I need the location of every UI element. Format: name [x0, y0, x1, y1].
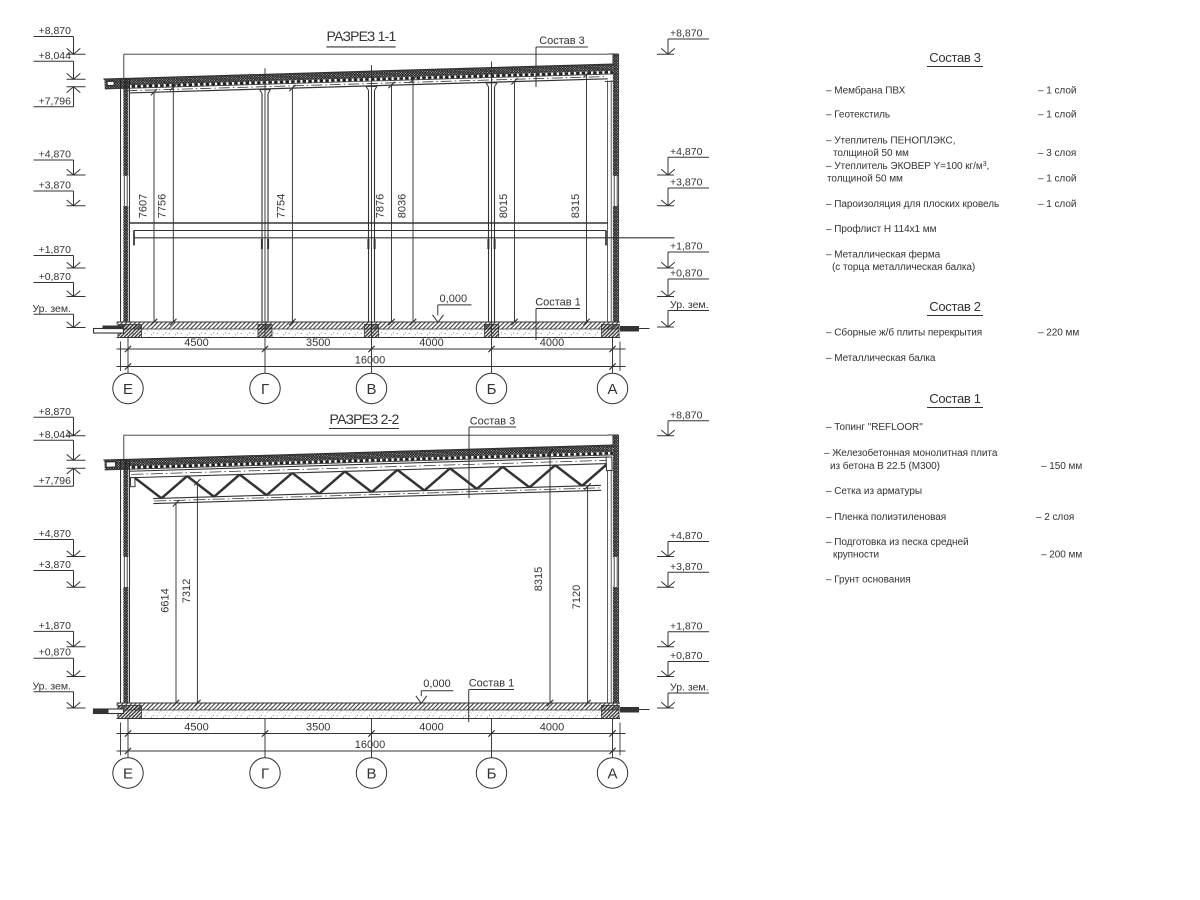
svg-text:+8,044: +8,044: [39, 429, 72, 441]
svg-text:Б: Б: [487, 381, 497, 398]
svg-text:+8,870: +8,870: [670, 28, 703, 40]
svg-text:Ур. зем.: Ур. зем.: [670, 682, 709, 694]
svg-text:Состав 3: Состав 3: [539, 35, 585, 47]
svg-text:РАЗРЕЗ 1-1: РАЗРЕЗ 1-1: [327, 28, 397, 44]
svg-text:8315: 8315: [570, 194, 582, 218]
svg-text:– Топинг "REFLOOR": – Топинг "REFLOOR": [826, 422, 923, 433]
svg-text:Состав 1: Состав 1: [469, 678, 515, 690]
svg-text:7756: 7756: [157, 194, 169, 218]
svg-text:4000: 4000: [540, 337, 564, 349]
svg-text:– Профлист Н 114х1 мм: – Профлист Н 114х1 мм: [826, 223, 937, 235]
svg-text:из бетона В 22.5 (М300): из бетона В 22.5 (М300): [830, 460, 940, 472]
svg-text:толщиной 50 мм: толщиной 50 мм: [827, 174, 903, 185]
svg-text:– 1 слой: – 1 слой: [1038, 110, 1076, 121]
svg-text:+0,870: +0,870: [39, 647, 72, 659]
svg-text:7754: 7754: [276, 194, 288, 218]
svg-text:– 150 мм: – 150 мм: [1041, 461, 1082, 472]
svg-text:Е: Е: [123, 381, 133, 398]
svg-text:А: А: [607, 381, 617, 398]
svg-text:+3,870: +3,870: [39, 180, 72, 192]
svg-text:+3,870: +3,870: [670, 177, 703, 189]
svg-text:8036: 8036: [397, 194, 409, 218]
svg-text:Ур. зем.: Ур. зем.: [32, 303, 71, 315]
svg-text:– Железобетонная монолитная п: – Железобетонная монолитная плита: [824, 447, 998, 459]
svg-text:7312: 7312: [181, 579, 193, 603]
svg-text:+0,870: +0,870: [670, 268, 703, 280]
svg-text:+4,870: +4,870: [670, 146, 703, 158]
svg-text:+4,870: +4,870: [39, 149, 72, 161]
svg-text:– 220 мм: – 220 мм: [1038, 328, 1079, 339]
svg-text:+4,870: +4,870: [670, 530, 703, 542]
svg-text:Г: Г: [261, 381, 269, 398]
svg-text:+4,870: +4,870: [39, 528, 72, 540]
svg-text:+0,870: +0,870: [670, 650, 703, 662]
svg-text:+7,796: +7,796: [39, 475, 72, 487]
svg-text:7120: 7120: [571, 585, 583, 609]
svg-text:4000: 4000: [419, 337, 443, 349]
svg-text:+8,044: +8,044: [39, 50, 72, 62]
svg-text:16000: 16000: [355, 739, 386, 751]
svg-text:– Утеплитель ПЕНОПЛЭКС,: – Утеплитель ПЕНОПЛЭКС,: [826, 136, 955, 147]
svg-text:Состав 3: Состав 3: [929, 50, 981, 65]
svg-text:8015: 8015: [498, 194, 510, 218]
svg-text:3500: 3500: [306, 722, 330, 734]
svg-text:– Сборные ж/б плиты перекрытия: – Сборные ж/б плиты перекрытия: [826, 327, 982, 339]
svg-text:– Пароизоляция для плоских кро: – Пароизоляция для плоских кровель: [826, 199, 999, 210]
svg-text:– Металлическая ферма: – Металлическая ферма: [826, 249, 941, 261]
svg-text:+8,870: +8,870: [39, 25, 72, 37]
svg-text:Состав 1: Состав 1: [535, 297, 581, 309]
svg-text:– Сетка из арматуры: – Сетка из арматуры: [826, 486, 922, 497]
svg-text:Б: Б: [487, 765, 497, 782]
svg-text:В: В: [366, 765, 376, 782]
svg-text:4500: 4500: [184, 337, 208, 349]
svg-text:+3,870: +3,870: [39, 559, 72, 571]
svg-text:+1,870: +1,870: [670, 620, 703, 632]
svg-text:+1,870: +1,870: [670, 241, 703, 253]
svg-text:– Грунт основания: – Грунт основания: [826, 575, 911, 586]
svg-text:– Подготовка из песка средней: – Подготовка из песка средней: [826, 537, 969, 548]
svg-text:Ур. зем.: Ур. зем.: [32, 680, 71, 692]
svg-text:+7,796: +7,796: [39, 95, 72, 107]
svg-text:+1,870: +1,870: [39, 244, 72, 256]
svg-text:4000: 4000: [419, 722, 443, 734]
svg-text:РАЗРЕЗ 2-2: РАЗРЕЗ 2-2: [330, 411, 400, 427]
svg-text:4500: 4500: [184, 722, 208, 734]
svg-text:6614: 6614: [160, 588, 172, 612]
svg-text:3500: 3500: [306, 337, 330, 349]
svg-text:7876: 7876: [375, 194, 387, 218]
svg-text:7607: 7607: [138, 194, 150, 218]
svg-text:– 1 слой: – 1 слой: [1038, 86, 1076, 97]
svg-text:А: А: [607, 765, 617, 782]
svg-text:4000: 4000: [540, 722, 564, 734]
svg-text:+3,870: +3,870: [670, 561, 703, 573]
svg-text:8315: 8315: [533, 567, 545, 591]
svg-text:– Пленка полиэтиленовая: – Пленка полиэтиленовая: [826, 512, 946, 523]
svg-text:крупности: крупности: [833, 550, 879, 561]
svg-text:+1,870: +1,870: [39, 620, 72, 632]
svg-text:0,000: 0,000: [423, 678, 451, 690]
svg-text:– 200 мм: – 200 мм: [1041, 550, 1082, 561]
svg-text:– Утеплитель ЭКОВЕР Y=100 кг/м: – Утеплитель ЭКОВЕР Y=100 кг/м3,: [826, 161, 989, 173]
svg-text:– Металлическая балка: – Металлическая балка: [826, 352, 936, 364]
svg-text:– 1 слой: – 1 слой: [1038, 199, 1076, 210]
svg-text:16000: 16000: [355, 355, 386, 367]
svg-text:В: В: [366, 381, 376, 398]
svg-text:– Мембрана ПВХ: – Мембрана ПВХ: [826, 85, 906, 97]
svg-text:+0,870: +0,870: [39, 271, 72, 283]
svg-text:Г: Г: [261, 765, 269, 782]
svg-text:Состав 1: Состав 1: [929, 391, 981, 406]
svg-text:– 1 слой: – 1 слой: [1038, 174, 1076, 185]
svg-text:+8,870: +8,870: [670, 409, 703, 421]
svg-text:Состав 3: Состав 3: [470, 416, 516, 428]
svg-text:0,000: 0,000: [440, 293, 468, 305]
svg-text:+8,870: +8,870: [39, 406, 72, 418]
svg-text:– 3 слоя: – 3 слоя: [1038, 148, 1076, 159]
svg-text:толщиной 50 мм: толщиной 50 мм: [833, 148, 909, 159]
svg-text:Состав 2: Состав 2: [929, 299, 981, 314]
svg-text:Ур. зем.: Ур. зем.: [670, 299, 709, 311]
svg-text:– 2 слоя: – 2 слоя: [1036, 512, 1074, 523]
svg-text:– Геотекстиль: – Геотекстиль: [826, 110, 890, 121]
svg-text:Е: Е: [123, 765, 133, 782]
svg-text:(с торца металлическая балка): (с торца металлическая балка): [832, 261, 975, 273]
